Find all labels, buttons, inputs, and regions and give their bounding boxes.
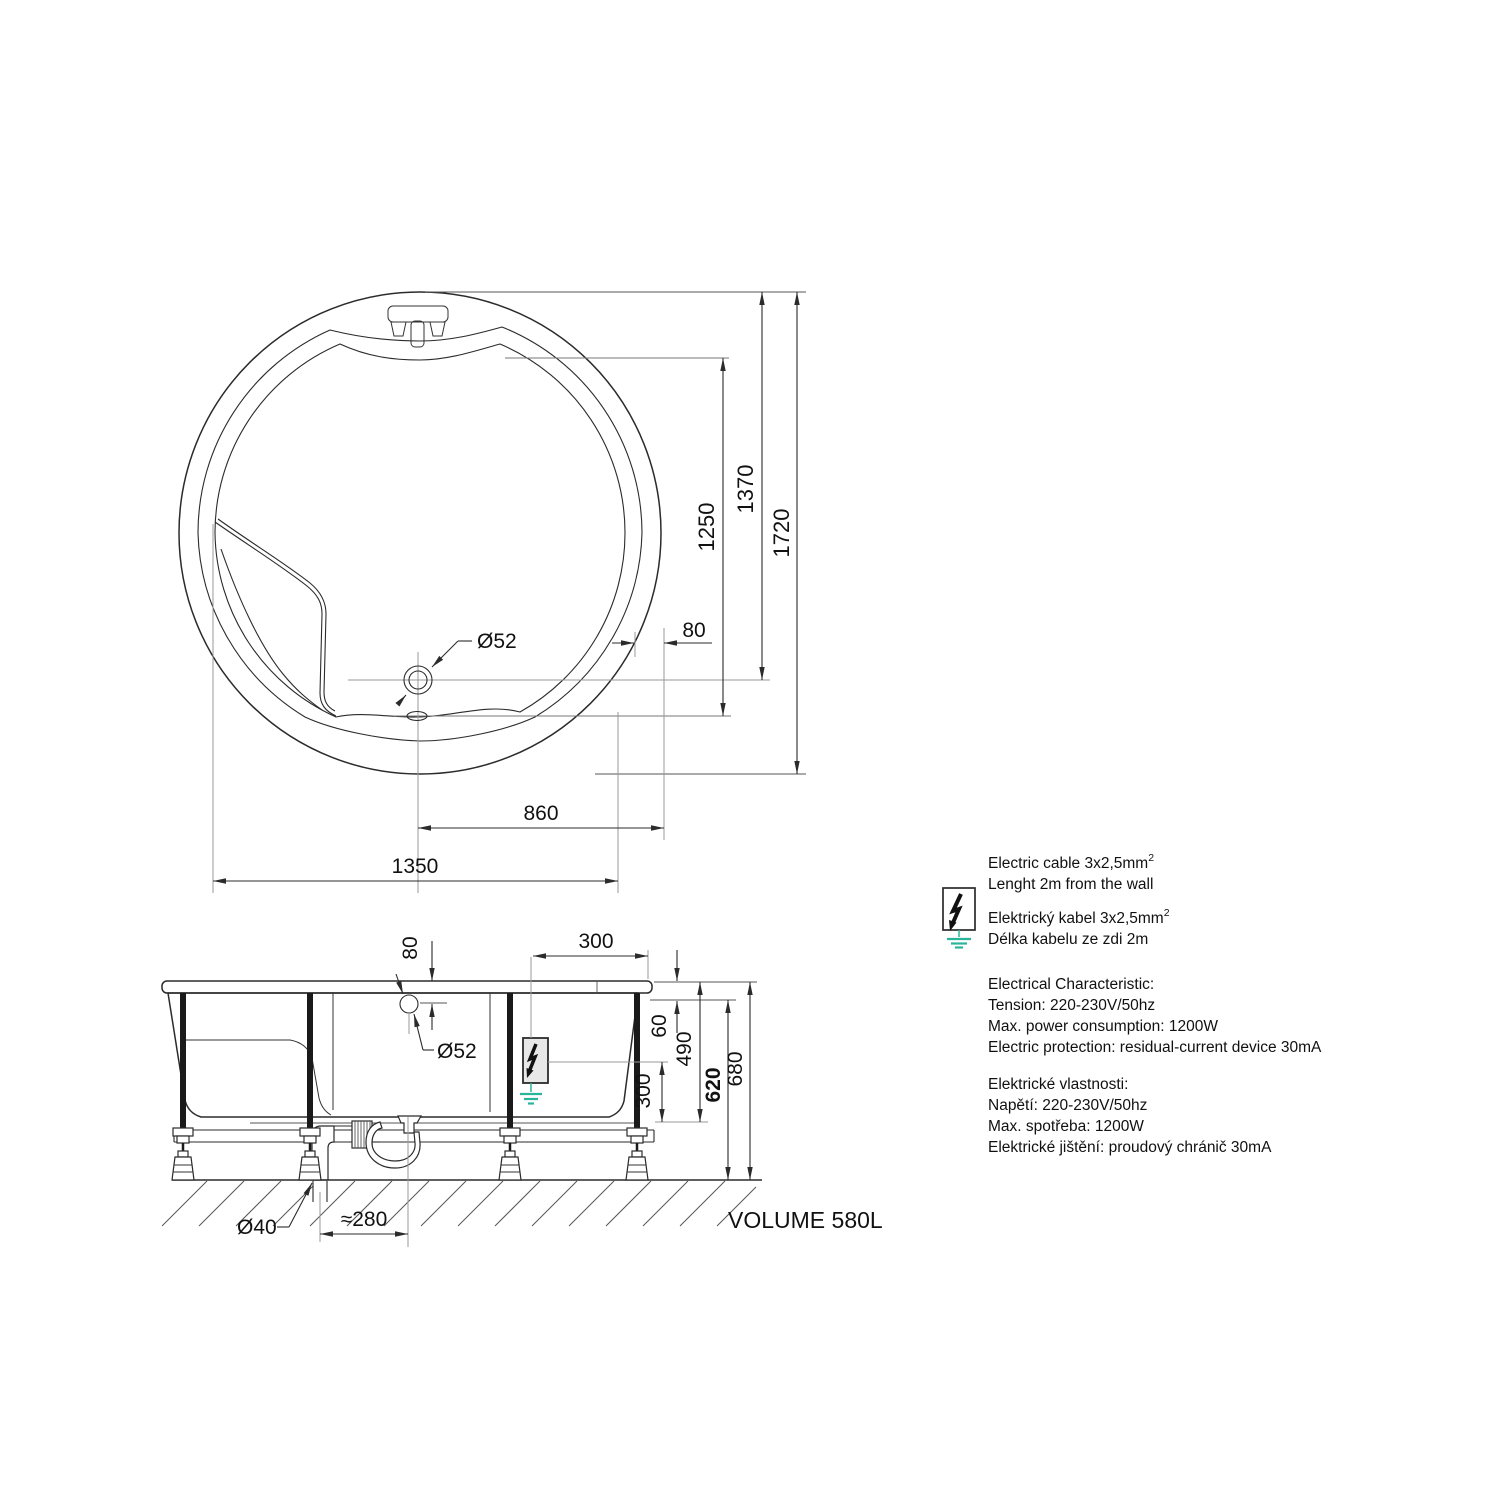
ground-icon bbox=[520, 1083, 542, 1104]
dim-label-680: 680 bbox=[724, 1051, 747, 1086]
electric-box bbox=[523, 1038, 548, 1083]
note-cz-cable-1: Elektrický kabel 3x2,5mm2 bbox=[988, 907, 1170, 927]
dim-label-1720: 1720 bbox=[769, 509, 794, 558]
note-en-spec-protection: Electric protection: residual-current de… bbox=[988, 1039, 1322, 1056]
top-view-extension-lines bbox=[213, 292, 806, 893]
dim-label-80-side: 80 bbox=[399, 936, 422, 959]
dim-label-1350: 1350 bbox=[392, 855, 439, 878]
note-cz-spec-tension: Napětí: 220-230V/50hz bbox=[988, 1097, 1147, 1114]
dim-label-300-right: 300 bbox=[632, 1073, 655, 1108]
faucet-handle-right bbox=[430, 322, 445, 336]
dim-label-300-top: 300 bbox=[578, 930, 613, 953]
note-en-cable-1: Electric cable 3x2,5mm2 bbox=[988, 852, 1154, 872]
note-cz-spec-title: Elektrické vlastnosti: bbox=[988, 1076, 1128, 1093]
dim-label-80-top: 80 bbox=[682, 619, 705, 642]
leveling-foot bbox=[626, 1128, 648, 1180]
ground-icon bbox=[947, 930, 971, 948]
top-view-dimensions: 1720 1370 1250 80 860 1350 Ø52 bbox=[213, 292, 797, 881]
leveling-feet bbox=[172, 1128, 648, 1180]
side-view: 300 80 Ø52 60 490 300 620 680 ≈280 Ø40 bbox=[162, 930, 883, 1247]
tub-outer-edge bbox=[179, 292, 661, 774]
tub-basin-edge bbox=[215, 344, 625, 717]
waste-pipe-label: Ø40 bbox=[237, 1216, 277, 1239]
tub-rim-section bbox=[162, 981, 652, 993]
tub-rim-inner-edge bbox=[198, 327, 642, 741]
technical-drawing: 1720 1370 1250 80 860 1350 Ø52 bbox=[0, 0, 1500, 1500]
drain-hole-section bbox=[400, 995, 418, 1013]
leveling-foot bbox=[172, 1128, 194, 1180]
dim-label-490: 490 bbox=[673, 1031, 696, 1066]
notes-text: Electric cable 3x2,5mm2 Lenght 2m from t… bbox=[988, 852, 1322, 1156]
note-cz-spec-protection: Elektrické jištění: proudový chránič 30m… bbox=[988, 1139, 1272, 1156]
note-en-cable-2: Lenght 2m from the wall bbox=[988, 876, 1153, 893]
electric-symbol bbox=[943, 888, 975, 948]
note-en-spec-tension: Tension: 220-230V/50hz bbox=[988, 997, 1155, 1014]
dim-label-1250: 1250 bbox=[694, 503, 719, 552]
seat-contour bbox=[215, 519, 336, 716]
note-cz-spec-power: Max. spotřeba: 1200W bbox=[988, 1118, 1144, 1135]
note-en-spec-power: Max. power consumption: 1200W bbox=[988, 1018, 1218, 1035]
top-view: 1720 1370 1250 80 860 1350 Ø52 bbox=[179, 292, 806, 893]
side-view-extension-lines bbox=[320, 950, 757, 1247]
note-en-spec-title: Electrical Characteristic: bbox=[988, 976, 1154, 993]
dim-label-1370: 1370 bbox=[733, 465, 758, 514]
faucet-spout bbox=[411, 321, 424, 347]
tub-body-section bbox=[168, 993, 638, 1117]
dim-label-280: ≈280 bbox=[341, 1208, 388, 1231]
dim-label-620: 620 bbox=[702, 1067, 725, 1102]
leveling-foot bbox=[499, 1128, 521, 1180]
waste-trap-assembly bbox=[312, 1116, 421, 1180]
drain-diameter-label-side: Ø52 bbox=[437, 1040, 477, 1063]
volume-label: VOLUME 580L bbox=[728, 1207, 883, 1233]
faucet-handle-left bbox=[391, 322, 406, 336]
faucet-plate bbox=[388, 306, 448, 322]
drain-diameter-label: Ø52 bbox=[477, 630, 517, 653]
notes-panel: Electric cable 3x2,5mm2 Lenght 2m from t… bbox=[943, 852, 1322, 1156]
note-cz-cable-2: Délka kabelu ze zdi 2m bbox=[988, 931, 1148, 948]
dim-label-60: 60 bbox=[648, 1014, 671, 1037]
dim-label-860: 860 bbox=[523, 802, 558, 825]
